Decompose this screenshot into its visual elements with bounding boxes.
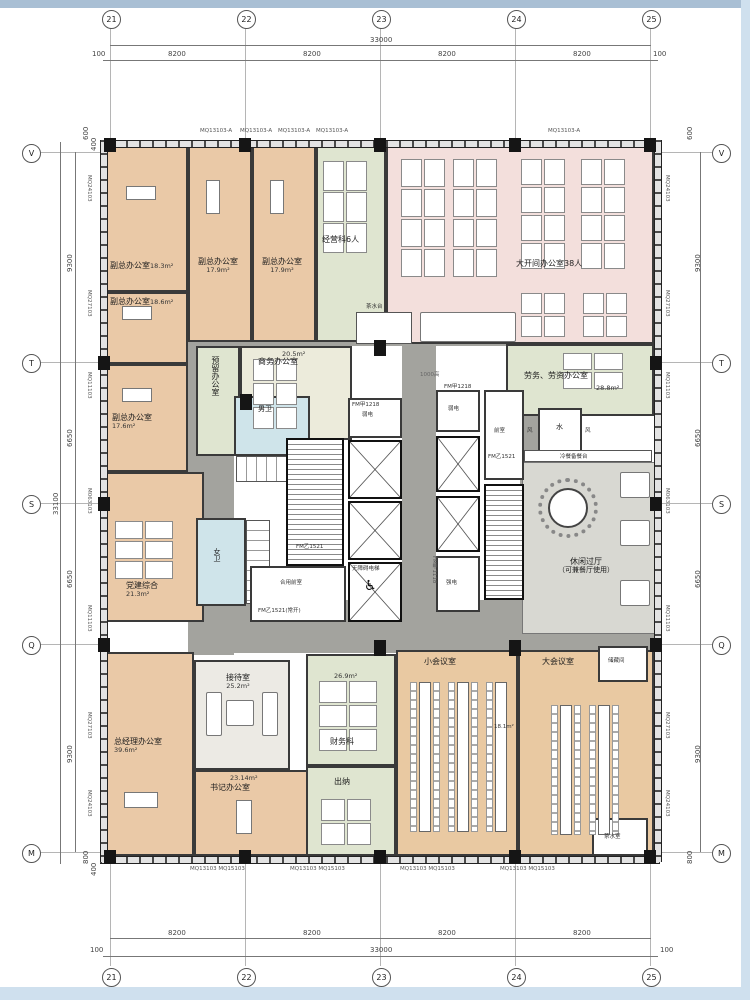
facade-tag-left-3: MQ11103 — [86, 372, 92, 399]
grid-line-22b — [245, 864, 246, 966]
column — [374, 138, 386, 152]
wheelchair-icon: ♿ — [364, 578, 377, 594]
grid-line-21 — [110, 27, 111, 140]
label-h1000: 1000高 — [420, 370, 440, 378]
elevator-shaft-3 — [436, 436, 480, 492]
label-reserved: 预留办公室 — [210, 356, 221, 396]
facade-tag-left-2: MQ27103 — [86, 290, 92, 317]
desk-deputy-2 — [206, 180, 220, 214]
facade-tag-bot-2: MQ13103 MQ15103 — [290, 866, 345, 872]
room-women-wc — [196, 518, 246, 606]
dim-left-seg-4: 9300 — [66, 745, 74, 763]
label-deputy-1: 副总办公室18.3m² — [110, 262, 173, 270]
facade-tag-top-3: MQ13103-A — [278, 128, 310, 134]
door-tag-a1: FM乙1521 — [296, 542, 323, 550]
label-men-wc: 男卫 — [258, 406, 272, 413]
facade-tag-left-1: MQ24103 — [86, 175, 92, 202]
dim-right-seg-3: 6650 — [694, 570, 702, 588]
label-tea-station: 茶水台 — [366, 302, 383, 310]
grid-bubble-Sr: S — [712, 495, 731, 514]
desk-cluster-open-4 — [580, 158, 626, 270]
column — [240, 394, 252, 410]
grid-bubble-Q: Q — [22, 636, 41, 655]
grid-line-Vr — [662, 152, 717, 153]
label-tea-room: 茶水室 — [604, 832, 621, 840]
facade-tag-bot-3: MQ13103 MQ15103 — [400, 866, 455, 872]
label-deputy-5: 副总办公室17.6m² — [112, 414, 152, 431]
dim-bot-seg-2: 8200 — [303, 929, 321, 937]
column — [374, 640, 386, 656]
label-secretary-area: 23.14m² — [230, 774, 258, 782]
facade-tag-right-5: MQ11103 — [664, 605, 670, 632]
label-labor-area: 28.8m² — [596, 384, 619, 392]
grid-line-25b — [650, 864, 651, 966]
dim-left-total: 33100 — [52, 493, 60, 515]
window-top-strip — [0, 0, 750, 8]
facade-tag-left-6: MQ27103 — [86, 712, 92, 739]
dim-left-off-600: 600 — [82, 127, 90, 140]
grid-line-22 — [245, 27, 246, 140]
buffet-counter — [524, 450, 652, 462]
grid-line-24b — [515, 864, 516, 966]
label-acc-elev: 无障碍电梯 — [352, 564, 380, 572]
label-cashier: 出纳 — [334, 778, 350, 786]
dim-top-edge-r: 100 — [653, 50, 666, 58]
table-small-meeting-3 — [495, 682, 507, 832]
stair-2 — [484, 484, 524, 600]
door-tag-a-open: FM乙1521(常开) — [258, 606, 301, 614]
dim-left-seg-3: 6650 — [66, 570, 74, 588]
label-deputy-4: 副总办公室18.6m² — [110, 298, 173, 306]
dim-left-seg-1: 9300 — [66, 254, 74, 272]
label-weak-1: 弱电 — [362, 410, 373, 418]
elevator-shaft-1 — [348, 440, 402, 499]
dim-right-off-600: 600 — [686, 127, 694, 140]
table-small-meeting-2 — [457, 682, 469, 832]
dim-total-top: 33000 — [370, 36, 392, 44]
grid-line-M — [40, 852, 100, 853]
chairs-large-meeting-4 — [612, 705, 619, 835]
sofa-reception-1 — [206, 692, 222, 736]
grid-line-25 — [650, 27, 651, 140]
table-small-meeting-1 — [419, 682, 431, 832]
desk-cluster-party — [114, 520, 174, 580]
label-reception: 接待室25.2m² — [226, 674, 250, 691]
grid-line-21b — [110, 864, 111, 966]
room-front — [484, 390, 524, 480]
chairs-small-meeting-1 — [410, 682, 417, 832]
dim-line-left — [75, 152, 76, 852]
desk-deputy-4 — [122, 306, 152, 320]
label-strong: 强电 — [446, 578, 457, 586]
facade-tag-top-4: MQ13103-A — [316, 128, 348, 134]
window-right-strip — [741, 0, 750, 1000]
window-bottom-strip — [0, 987, 750, 1000]
dim-right-seg-4: 9300 — [694, 745, 702, 763]
dim-left-off-800: 800 — [82, 851, 90, 864]
desk-secretary — [236, 800, 252, 834]
sofa-reception-2 — [262, 692, 278, 736]
column — [509, 850, 521, 864]
facade-tag-right-7: MQ24103 — [664, 790, 670, 817]
grid-bubble-S: S — [22, 495, 41, 514]
grid-line-V — [40, 152, 100, 153]
facade-tag-bot-1: MQ13103 MQ15103 — [190, 866, 245, 872]
room-deputy-office-2 — [188, 146, 252, 342]
dim-left-off-400: 400 — [90, 138, 98, 151]
column — [509, 640, 521, 656]
grid-line-T — [40, 362, 100, 363]
label-gm: 总经理办公室39.6m² — [114, 738, 162, 755]
facade-tag-left-4: M063103 — [86, 488, 92, 514]
label-party: 党建综合21.3m² — [126, 582, 158, 599]
dim-line-bot-2 — [103, 956, 658, 957]
label-women-wc: 女卫 — [212, 548, 222, 562]
grid-line-Sr — [662, 503, 717, 504]
column — [650, 497, 662, 511]
sofa-lobby-3 — [620, 580, 650, 606]
round-table — [548, 488, 588, 528]
grid-bubble-24b: 24 — [507, 968, 526, 987]
desk-gm — [124, 792, 158, 808]
column — [650, 356, 662, 370]
facade-tag-bot-4: MQ13103 MQ15103 — [500, 866, 555, 872]
label-deputy-3: 副总办公室17.9m² — [262, 258, 302, 275]
table-large-meeting-1 — [560, 705, 572, 835]
grid-bubble-Qr: Q — [712, 636, 731, 655]
dim-left-seg-2: 6650 — [66, 429, 74, 447]
facade-tag-right-4: M063103 — [664, 488, 670, 514]
label-shared-front: 合用前室 — [280, 578, 302, 586]
grid-line-Q — [40, 644, 100, 645]
table-reception — [226, 700, 254, 726]
label-mgmt: 经营科6人 — [322, 236, 359, 244]
chairs-small-meeting-2 — [433, 682, 440, 832]
column — [239, 138, 251, 152]
grid-bubble-23: 23 — [372, 10, 391, 29]
facade-tag-top-1: MQ13103-A — [200, 128, 232, 134]
dim-bot-edge-r: 100 — [660, 946, 673, 954]
label-buffet: 冷餐备餐台 — [560, 452, 588, 460]
column — [650, 638, 662, 652]
column — [374, 850, 386, 864]
grid-bubble-T: T — [22, 354, 41, 373]
desk-cluster-open-5 — [520, 292, 566, 338]
column — [644, 850, 656, 864]
dim-bot-edge-l: 100 — [90, 946, 103, 954]
label-vent-2: 风 — [585, 426, 591, 434]
column — [98, 638, 110, 652]
grid-bubble-Vr: V — [712, 144, 731, 163]
facade-tag-top-5: MQ13103-A — [548, 128, 580, 134]
label-secretary: 书记办公室 — [210, 784, 250, 792]
dim-line-left2 — [60, 142, 61, 864]
dim-right-seg-2: 6650 — [694, 429, 702, 447]
grid-bubble-Mr: M — [712, 844, 731, 863]
dim-top-seg-3: 8200 — [438, 50, 456, 58]
column — [98, 356, 110, 370]
grid-line-Qr — [662, 644, 717, 645]
chairs-small-meeting-4 — [471, 682, 478, 832]
grid-bubble-Tr: T — [712, 354, 731, 373]
label-vent-1: 风 — [527, 426, 533, 434]
desk-deputy-3 — [270, 180, 284, 214]
dim-bot-seg-4: 8200 — [573, 929, 591, 937]
dim-top-seg-2: 8200 — [303, 50, 321, 58]
dim-line-top-1 — [110, 45, 651, 46]
desk-cluster-open-2 — [452, 158, 498, 278]
facade-tag-right-3: MQ11103 — [664, 372, 670, 399]
label-finance: 财务科 — [330, 738, 354, 746]
grid-bubble-21b: 21 — [102, 968, 121, 987]
grid-bubble-M: M — [22, 844, 41, 863]
desk-cluster-open-3 — [520, 158, 566, 270]
grid-bubble-22: 22 — [237, 10, 256, 29]
label-deputy-2: 副总办公室17.9m² — [198, 258, 238, 275]
label-water: 水 — [556, 424, 563, 431]
room-strong-power — [436, 556, 480, 612]
grid-bubble-21: 21 — [102, 10, 121, 29]
column — [509, 138, 521, 152]
elevator-shaft-4 — [436, 496, 480, 552]
dim-line-bot-1 — [110, 938, 651, 939]
sofa-lobby-2 — [620, 520, 650, 546]
column — [104, 850, 116, 864]
dim-top-seg-4: 8200 — [573, 50, 591, 58]
dim-right-off-800: 800 — [686, 851, 694, 864]
chairs-small-meeting-5 — [486, 682, 493, 832]
dim-top-edge-l: 100 — [92, 50, 105, 58]
facade-tag-right-2: MQ27103 — [664, 290, 670, 317]
table-large-meeting-2 — [598, 705, 610, 835]
grid-bubble-23b: 23 — [372, 968, 391, 987]
door-tag-b1: FM甲1218 — [352, 400, 379, 408]
label-large-meeting: 大会议室 — [542, 658, 574, 666]
label-small-meeting-area: 18.1m² — [494, 724, 514, 730]
dim-bot-seg-1: 8200 — [168, 929, 186, 937]
room-water — [538, 408, 582, 456]
chairs-small-meeting-3 — [448, 682, 455, 832]
dim-line-top-2 — [103, 60, 658, 61]
room-deputy-office-3 — [252, 146, 316, 342]
desk-cluster-business — [252, 358, 298, 430]
column — [374, 340, 386, 356]
desk-deputy-5 — [122, 388, 152, 402]
column — [98, 497, 110, 511]
facade-tag-left-5: MQ11103 — [86, 605, 92, 632]
desk-cluster-open-6 — [582, 292, 628, 338]
label-open-office: 大开间办公室38人 — [516, 260, 582, 268]
label-front: 前室 — [494, 426, 505, 434]
dim-left-off-400b: 400 — [90, 863, 98, 876]
sofa-lobby-1 — [620, 472, 650, 498]
label-small-meeting: 小会议室 — [424, 658, 456, 666]
dim-top-seg-1: 8200 — [168, 50, 186, 58]
elevator-shaft-2 — [348, 501, 402, 560]
desk-cluster-open-1 — [400, 158, 446, 278]
door-tag-a2: FM乙1521 — [488, 452, 515, 460]
grid-bubble-V: V — [22, 144, 41, 163]
lobby-sofa-top — [420, 312, 516, 342]
grid-line-24 — [515, 27, 516, 140]
desk-deputy-1 — [126, 186, 156, 200]
chairs-large-meeting-3 — [589, 705, 596, 835]
room-storage — [598, 646, 648, 682]
label-finance-area: 26.9m² — [334, 672, 357, 680]
label-lobby: 休闲过厅（可兼餐厅使用） — [558, 558, 614, 575]
label-weak-2: 弱电 — [448, 404, 459, 412]
column — [644, 138, 656, 152]
facade-tag-left-7: MQ24103 — [86, 790, 92, 817]
grid-bubble-25: 25 — [642, 10, 661, 29]
label-storage: 储藏间 — [608, 656, 625, 664]
door-tag-b2: FM甲1218 — [444, 382, 471, 390]
column — [104, 138, 116, 152]
grid-bubble-22b: 22 — [237, 968, 256, 987]
label-business: 商务办公室 — [258, 358, 298, 366]
chairs-large-meeting-2 — [574, 705, 581, 835]
label-labor: 劳务、劳资办公室 — [524, 372, 588, 380]
dim-right-seg-1: 9300 — [694, 254, 702, 272]
dim-total-bot: 33000 — [370, 946, 392, 954]
grid-bubble-25b: 25 — [642, 968, 661, 987]
facade-tag-top-2: MQ13103-A — [240, 128, 272, 134]
door-tag-c: FM甲1118 — [430, 556, 438, 583]
facade-tag-right-6: MQ27103 — [664, 712, 670, 739]
desk-cluster-cashier — [320, 798, 372, 846]
grid-line-Tr — [662, 362, 717, 363]
chairs-large-meeting-1 — [551, 705, 558, 835]
grid-bubble-24: 24 — [507, 10, 526, 29]
column — [239, 850, 251, 864]
dim-bot-seg-3: 8200 — [438, 929, 456, 937]
facade-tag-right-1: MQ24103 — [664, 175, 670, 202]
